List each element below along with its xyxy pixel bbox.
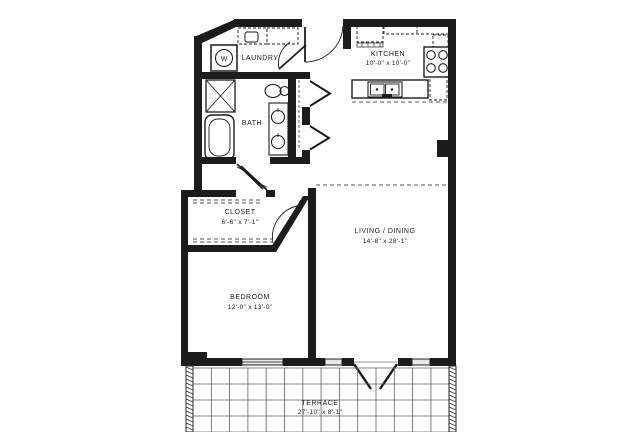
bedroom-label: BEDROOM — [230, 294, 270, 302]
kitchen-dims: 10'-0" x 10'-0" — [366, 60, 410, 68]
vanity-sinks-icon — [269, 103, 288, 155]
toilet-icon — [265, 85, 289, 98]
living-dining-dims: 14'-8" x 28'-1" — [363, 238, 407, 246]
floor-plan: W — [0, 0, 640, 432]
closet-door — [241, 166, 267, 190]
terrace-dims: 27'-10" x 8'-1" — [298, 409, 342, 417]
floor-plan-drawing: W — [0, 0, 640, 432]
kitchen-fixtures — [316, 20, 452, 185]
shower-icon — [206, 80, 235, 112]
laundry-label: LAUNDRY — [242, 55, 279, 63]
linen-closet-doors — [310, 81, 330, 150]
living-window-left — [325, 359, 342, 365]
washer-glyph: W — [221, 56, 228, 63]
island-sink-icon — [352, 80, 428, 98]
range-icon — [424, 47, 450, 77]
terrace-label: TERRACE — [302, 400, 339, 408]
bathtub-icon — [205, 115, 234, 160]
living-dining-label: LIVING / DINING — [355, 228, 416, 236]
bedroom-dims: 12'-0" x 13'-0" — [228, 304, 272, 312]
washer-icon: W — [211, 45, 237, 71]
terrace-edge-right — [449, 366, 456, 432]
terrace-edge-left — [186, 366, 193, 432]
bath-door — [237, 164, 263, 189]
bath-label: BATH — [242, 120, 262, 128]
laundry-sink-icon — [245, 32, 258, 42]
laundry-door — [278, 42, 306, 69]
closet-label: CLOSET — [224, 209, 255, 217]
entry-door — [305, 26, 343, 62]
closet-dims: 6'-6" x 7'-1" — [222, 219, 259, 227]
kitchen-label: KITCHEN — [371, 51, 405, 59]
living-window-right — [412, 359, 430, 365]
french-doors — [354, 362, 397, 389]
